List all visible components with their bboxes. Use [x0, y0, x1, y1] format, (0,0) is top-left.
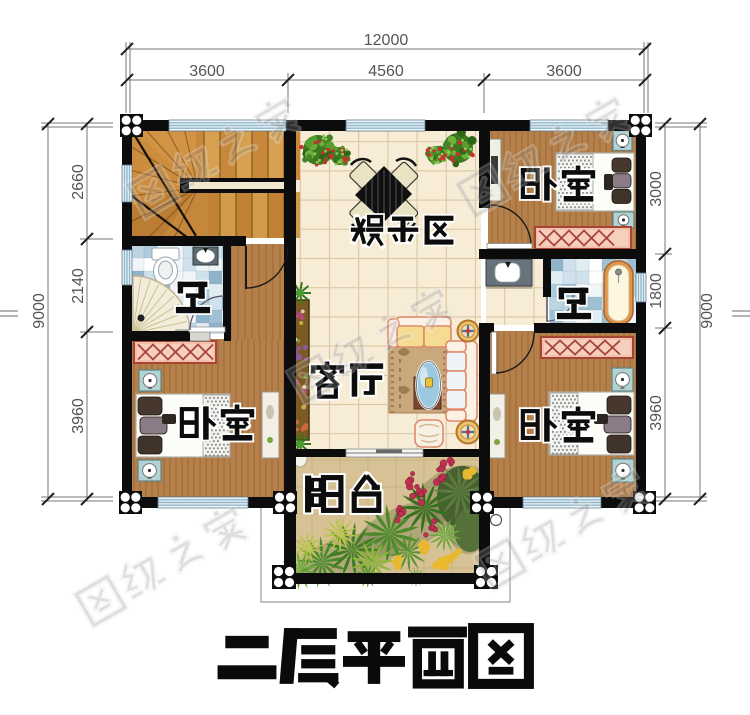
svg-text:2660: 2660 [70, 164, 87, 200]
svg-text:3600: 3600 [546, 63, 582, 80]
svg-text:4560: 4560 [368, 63, 404, 80]
svg-text:3960: 3960 [648, 395, 665, 431]
svg-text:12000: 12000 [364, 32, 409, 49]
svg-text:1800: 1800 [648, 273, 665, 309]
svg-text:9000: 9000 [31, 293, 48, 329]
svg-text:2140: 2140 [70, 268, 87, 304]
svg-text:9000: 9000 [699, 293, 716, 329]
svg-text:3000: 3000 [648, 171, 665, 207]
svg-text:3600: 3600 [189, 63, 225, 80]
svg-text:3960: 3960 [70, 398, 87, 434]
